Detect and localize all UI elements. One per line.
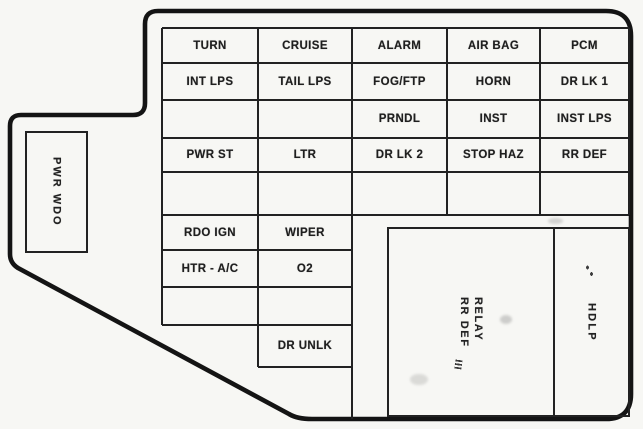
fuse-cell-fog-ftp: FOG/FTP	[352, 63, 447, 100]
fuse-cell-empty	[162, 172, 258, 215]
fuse-cell-prndl: PRNDL	[352, 100, 447, 138]
hdlp-slot: HDLP	[554, 228, 629, 416]
scan-artifact-mark	[585, 264, 594, 278]
fuse-cell-empty	[258, 172, 352, 215]
fuse-cell-alarm: ALARM	[352, 28, 447, 63]
fuse-cell-horn: HORN	[447, 63, 540, 100]
fuse-cell-rr-def: RR DEF	[540, 138, 629, 172]
fuse-cell-empty	[162, 287, 258, 325]
relay-label-line1: RELAY	[471, 297, 485, 348]
fuse-cell-empty	[162, 100, 258, 138]
scan-smudge	[410, 374, 428, 385]
pwr-wdo-slot: PWR WDO	[26, 132, 87, 252]
pwr-wdo-label: PWR WDO	[51, 157, 63, 227]
fuse-cell-empty	[258, 100, 352, 138]
fuse-cell-cruise: CRUISE	[258, 28, 352, 63]
scan-artifact-mark	[454, 359, 462, 370]
fuse-cell-pwr-st: PWR ST	[162, 138, 258, 172]
hdlp-label: HDLP	[586, 303, 598, 342]
fuse-cell-dr-lk-2: DR LK 2	[352, 138, 447, 172]
fuse-cell-empty	[447, 172, 540, 215]
relay-label-line2: RR DEF	[457, 297, 471, 348]
fuse-cell-inst-lps: INST LPS	[540, 100, 629, 138]
fuse-cell-dr-unlk: DR UNLK	[258, 325, 352, 367]
fuse-cell-empty	[258, 287, 352, 325]
fuse-cell-htr-ac: HTR - A/C	[162, 250, 258, 287]
rr-def-relay-label: RELAY RR DEF	[457, 297, 485, 348]
fuse-cell-air-bag: AIR BAG	[447, 28, 540, 63]
rr-def-relay-slot: RELAY RR DEF	[388, 228, 554, 416]
fuse-cell-dr-lk-1: DR LK 1	[540, 63, 629, 100]
fuse-cell-tail-lps: TAIL LPS	[258, 63, 352, 100]
fuse-cell-wiper: WIPER	[258, 215, 352, 250]
fuse-box-cover-diagram: TURN INT LPS PWR ST RDO IGN HTR - A/C CR…	[0, 0, 643, 429]
fuse-cell-pcm: PCM	[540, 28, 629, 63]
fuse-cell-stop-haz: STOP HAZ	[447, 138, 540, 172]
fuse-cell-rdo-ign: RDO IGN	[162, 215, 258, 250]
fuse-cell-empty	[540, 172, 629, 215]
scan-smudge	[548, 218, 563, 224]
fuse-cell-ltr: LTR	[258, 138, 352, 172]
fuse-cell-empty	[352, 172, 447, 215]
scan-smudge	[500, 315, 512, 324]
fuse-cell-int-lps: INT LPS	[162, 63, 258, 100]
fuse-cell-o2: O2	[258, 250, 352, 287]
fuse-cell-inst: INST	[447, 100, 540, 138]
fuse-cell-turn: TURN	[162, 28, 258, 63]
